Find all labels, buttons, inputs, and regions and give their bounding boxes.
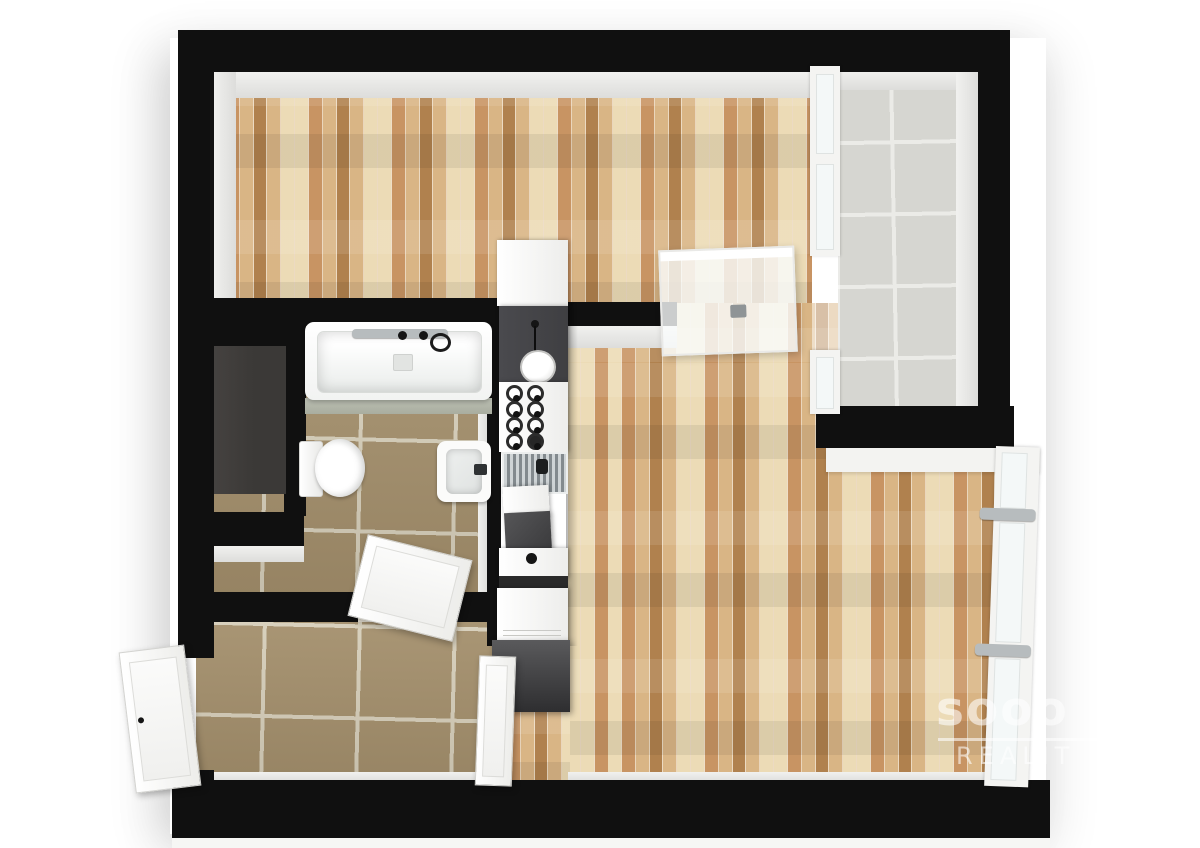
wall-bathroom-south-left <box>180 592 358 622</box>
hallway-tile-floor <box>196 620 492 782</box>
floor-plan-render: sooo REALIT <box>0 0 1200 848</box>
stove-burner <box>506 385 523 402</box>
bathroom-door-panel <box>361 546 460 629</box>
watermark-rule <box>938 738 1108 741</box>
balcony-glass-pane-2 <box>816 164 834 250</box>
balcony-glass-pane-3 <box>816 357 834 409</box>
watermark: sooo REALIT <box>928 686 1118 772</box>
balcony-door-handle <box>730 304 746 318</box>
toilet-bowl <box>315 439 365 497</box>
wall-left <box>178 30 214 658</box>
kitchen-appliance <box>497 588 568 642</box>
kitchen-tall-cabinet <box>497 240 568 306</box>
wall-bottom-outer-edge <box>172 838 1050 848</box>
watermark-word: REALIT <box>956 744 1075 768</box>
balcony-door-edge <box>660 248 792 262</box>
kitchen-dark-counter <box>499 306 568 382</box>
kitchen-dark-module <box>504 511 552 553</box>
washbasin <box>437 441 491 502</box>
wall-face-balcony-right <box>956 70 978 415</box>
shower-mixer-knob <box>398 331 407 340</box>
shower-handset <box>430 333 451 352</box>
stove-burner <box>527 417 544 434</box>
appliance-line-2 <box>503 635 561 636</box>
wall-bottom <box>172 780 1050 838</box>
window-mullion-2 <box>975 643 1031 657</box>
balcony-glazing-upper <box>810 66 840 256</box>
stove-burner <box>527 401 544 418</box>
wall-balcony-bottom <box>816 406 1014 448</box>
window-pane-1 <box>1000 452 1028 509</box>
stove-burner <box>527 385 544 402</box>
living-room-door-panel <box>482 665 508 778</box>
bathtub-drain <box>393 354 413 371</box>
wall-face-top <box>212 72 812 98</box>
appliance-line <box>503 630 561 631</box>
stove-burner <box>506 433 523 450</box>
bathtub-deck <box>305 398 492 414</box>
stove-burner-pot <box>527 433 544 450</box>
stove-burner <box>506 401 523 418</box>
wall-balcony-right <box>978 30 1010 450</box>
balcony-door <box>658 246 798 357</box>
window-pane-2 <box>995 522 1025 643</box>
balcony-glass-pane <box>816 74 834 154</box>
window-mullion-1 <box>979 507 1035 521</box>
wall-face-left <box>212 72 236 303</box>
pendant-lamp <box>520 350 556 384</box>
watermark-brand: sooo <box>936 686 1069 733</box>
balcony-door-threshold <box>812 256 840 350</box>
washbasin-faucet <box>474 464 487 475</box>
stove-burner <box>506 417 523 434</box>
counter-drain <box>526 553 537 564</box>
balcony-glazing-lower <box>810 350 840 414</box>
storage-niche-floor <box>214 346 286 494</box>
shower-mixer-knob-2 <box>419 331 428 340</box>
wall-top <box>178 30 1008 72</box>
living-room-door <box>475 655 517 786</box>
kitchen-sink-faucet <box>536 459 548 474</box>
